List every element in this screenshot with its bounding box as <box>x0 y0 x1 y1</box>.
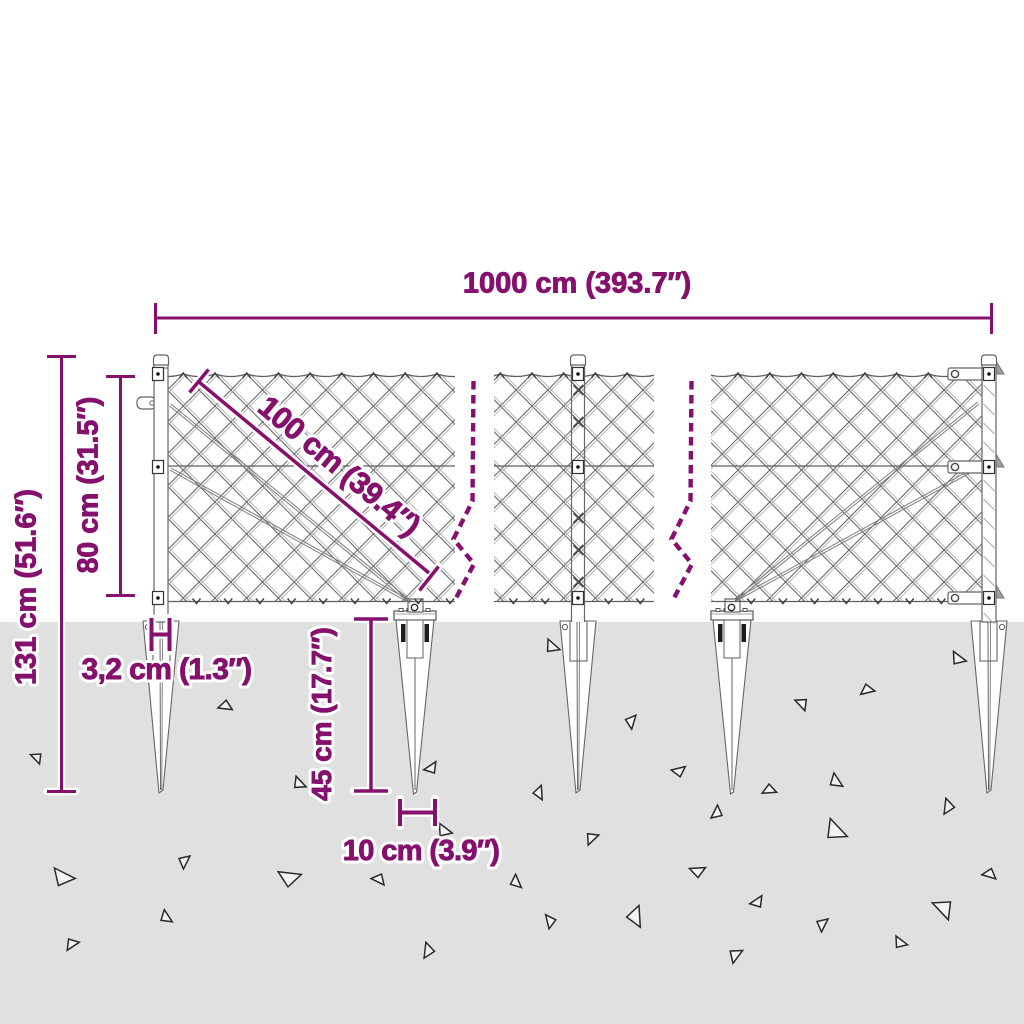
svg-text:45 cm (17.7″): 45 cm (17.7″) <box>306 627 337 801</box>
svg-text:3,2 cm (1.3″): 3,2 cm (1.3″) <box>82 653 252 686</box>
svg-text:131 cm (51.6″): 131 cm (51.6″) <box>11 489 43 685</box>
svg-text:1000 cm (393.7″): 1000 cm (393.7″) <box>463 268 691 300</box>
svg-text:80 cm (31.5″): 80 cm (31.5″) <box>73 397 105 574</box>
svg-text:10 cm (3.9″): 10 cm (3.9″) <box>343 835 500 867</box>
